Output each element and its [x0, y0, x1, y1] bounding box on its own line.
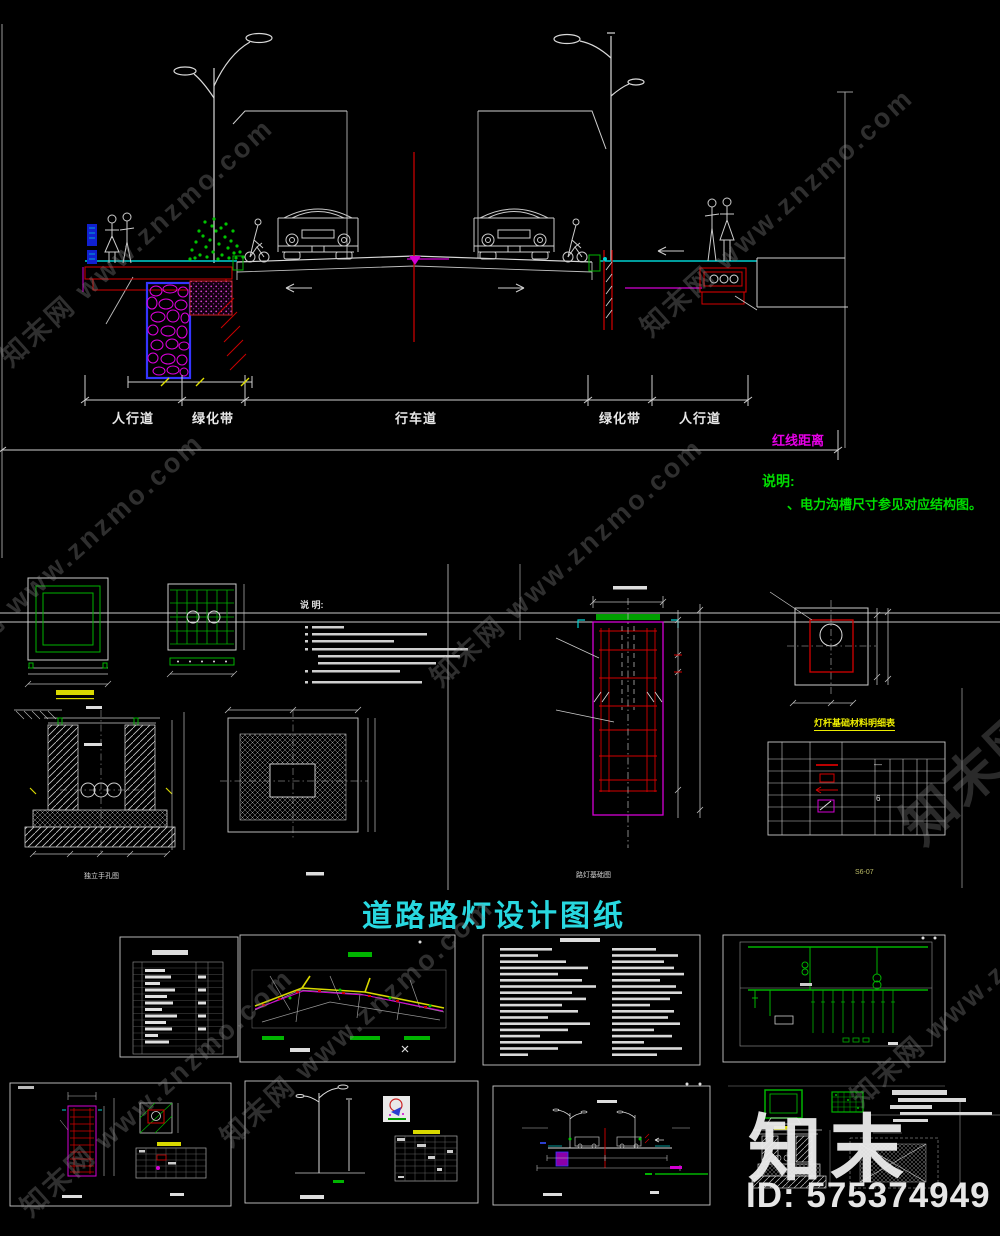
caption-foundation: 路灯基础图	[576, 870, 611, 880]
lamp-foundation-elevation	[556, 586, 703, 848]
drawing-set-title: 道路路灯设计图纸	[362, 891, 626, 935]
red-line-distance-label: 红线距离	[772, 430, 824, 449]
material-schedule-table	[768, 742, 945, 835]
lane-direction-arrows	[286, 247, 684, 292]
grate-cover-plan	[167, 584, 244, 677]
car-left	[278, 209, 358, 259]
zone-label-sidewalk-right: 人行道	[679, 408, 721, 427]
cyclist-right	[563, 219, 587, 262]
zone-label-carriageway: 行车道	[395, 408, 437, 427]
zone-label-greenbelt-left: 绿化带	[192, 408, 234, 427]
zone-label-greenbelt-right: 绿化带	[599, 408, 641, 427]
general-notes-lines	[305, 626, 468, 684]
handhole-section	[14, 706, 184, 857]
notes-title: 说明:	[762, 471, 795, 491]
clearance-envelope-lines	[233, 111, 606, 258]
thumbnail-electrical-diagram	[723, 935, 945, 1062]
caption-sheet-no: S6-07	[855, 869, 874, 876]
manhole-cover-plan	[25, 578, 111, 699]
street-lamp-right	[554, 33, 644, 261]
thumbnail-spec-notes	[483, 935, 700, 1065]
pedestrians-left	[105, 213, 134, 263]
image-id-label: ID: 575374949	[746, 1176, 991, 1216]
thumbnail-cross-section	[493, 1083, 710, 1206]
thumbnail-foundation-detail	[10, 1083, 231, 1206]
gravel-fill-block	[190, 281, 246, 370]
cad-drawing-page: { "watermark": { "text": "知末网 www.znzmo.…	[0, 0, 1000, 1236]
zone-label-sidewalk-left: 人行道	[112, 408, 154, 427]
handhole-plan	[220, 707, 375, 876]
street-sign	[87, 224, 97, 264]
masonry-retaining-wall	[147, 283, 190, 378]
table-cell-qty: 6	[876, 794, 880, 803]
thumbnail-route-plan	[240, 935, 455, 1062]
cyclist-left	[245, 219, 269, 262]
electric-duct-bank	[625, 268, 757, 310]
material-table-title: 灯杆基础材料明细表	[814, 716, 895, 731]
thumbnail-drawing-list	[120, 937, 238, 1057]
lamp-foundation-plan	[770, 592, 891, 706]
car-right	[474, 209, 554, 259]
median-centerline	[407, 152, 449, 342]
thumbnail-lamp-elevation	[245, 1081, 478, 1203]
road-cross-section-drawing	[0, 0, 1000, 560]
drawing-frame	[2, 24, 853, 558]
pedestrians-right	[705, 198, 734, 261]
dimension-line-redline	[0, 430, 842, 460]
table-cell-dash: —	[874, 760, 882, 769]
caption-handhole: 独立手孔图	[84, 871, 119, 881]
shrub-planting	[188, 217, 244, 260]
detail-notes-title: 说 明:	[300, 598, 324, 611]
note-line-1: 、电力沟槽尺寸参见对应结构图。	[787, 494, 982, 513]
dimension-line-zones	[81, 375, 752, 406]
